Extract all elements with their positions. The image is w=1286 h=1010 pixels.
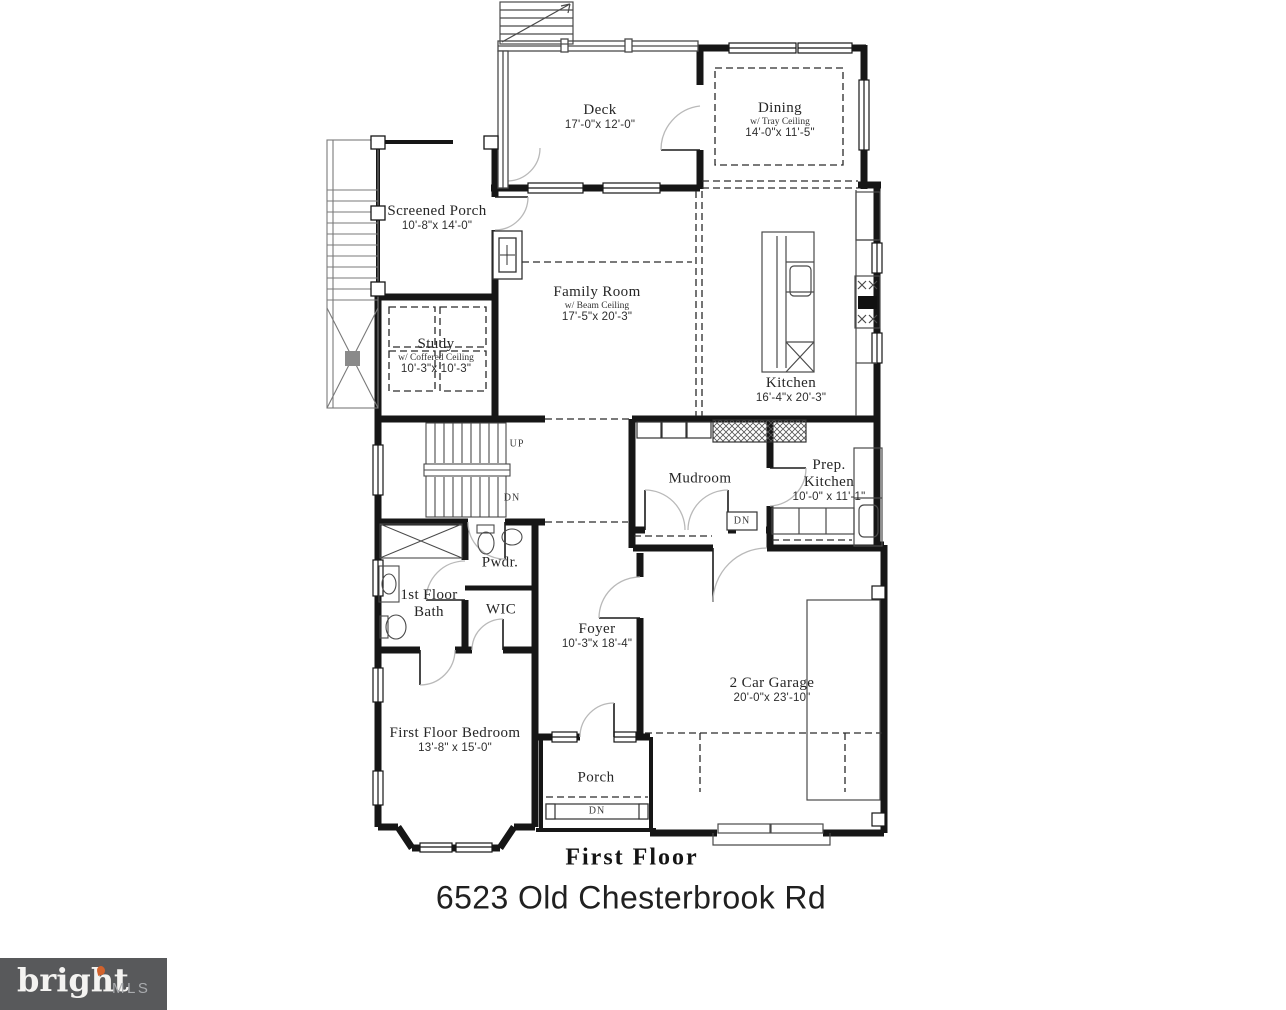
room-name: Study: [376, 336, 496, 353]
mudroom-step-dn-label: DN: [734, 516, 750, 527]
room-name: Dining: [710, 100, 850, 117]
main-staircase: [424, 423, 510, 517]
room-name: Pwdr.: [465, 555, 535, 572]
room-label-foyer: Foyer 10'-3"x 18'-4": [542, 621, 652, 651]
room-label-deck: Deck 17'-0"x 12'-0": [530, 102, 670, 132]
side-yard-stairs: [327, 140, 378, 408]
room-dims: 10'-8"x 14'-0": [357, 220, 517, 233]
room-dims: 14'-0"x 11'-5": [710, 127, 850, 140]
stairs-up-label: UP: [510, 439, 525, 450]
logo-suffix-text: MLS: [112, 980, 150, 997]
bath-fixtures: [379, 524, 462, 639]
powder-fixtures: [477, 525, 522, 554]
room-name: Mudroom: [645, 471, 755, 488]
room-name: 1st Floor Bath: [390, 587, 468, 621]
room-name: Family Room: [517, 284, 677, 301]
porch-step-dn-label: DN: [589, 806, 605, 817]
room-label-screened-porch: Screened Porch 10'-8"x 14'-0": [357, 203, 517, 233]
room-sub: w/ Beam Ceiling: [517, 301, 677, 312]
room-label-family-room: Family Room w/ Beam Ceiling 17'-5"x 20'-…: [517, 284, 677, 324]
room-label-wic: WIC: [471, 602, 531, 619]
room-name: Kitchen: [726, 375, 856, 392]
room-label-kitchen: Kitchen 16'-4"x 20'-3": [726, 375, 856, 405]
bright-mls-logo: bright MLS: [0, 958, 167, 1010]
room-name: Porch: [551, 770, 641, 787]
room-label-porch: Porch: [551, 770, 641, 787]
room-label-first-floor-bath: 1st Floor Bath: [390, 587, 468, 621]
room-label-dining: Dining w/ Tray Ceiling 14'-0"x 11'-5": [710, 100, 850, 140]
room-name: Prep. Kitchen: [786, 457, 872, 491]
room-label-powder: Pwdr.: [465, 555, 535, 572]
room-dims: 13'-8" x 15'-0": [345, 742, 565, 755]
room-name: Deck: [530, 102, 670, 119]
room-name: 2 Car Garage: [692, 675, 852, 692]
room-dims: 10'-0" x 11'-1": [786, 490, 872, 503]
room-name: Screened Porch: [357, 203, 517, 220]
room-name: Foyer: [542, 621, 652, 638]
room-dims: 17'-0"x 12'-0": [530, 119, 670, 132]
fireplace: [493, 231, 522, 279]
room-dims: 20'-0"x 23'-10": [692, 692, 852, 705]
garage-details: [713, 586, 885, 845]
room-label-mudroom: Mudroom: [645, 471, 755, 488]
room-name: First Floor Bedroom: [345, 725, 565, 742]
deck-stairs: [500, 2, 573, 44]
address-title: 6523 Old Chesterbrook Rd: [436, 880, 826, 917]
room-sub: w/ Tray Ceiling: [710, 117, 850, 128]
room-label-first-floor-bedroom: First Floor Bedroom 13'-8" x 15'-0": [345, 725, 565, 755]
room-name: WIC: [471, 602, 531, 619]
floor-plan-page: Deck 17'-0"x 12'-0" Dining w/ Tray Ceili…: [0, 0, 1286, 1010]
room-dims: 16'-4"x 20'-3": [726, 392, 856, 405]
room-label-prep-kitchen: Prep. Kitchen 10'-0" x 11'-1": [786, 457, 872, 503]
room-dims: 10'-3"x 10'-3": [376, 363, 496, 376]
stairs-down-label: DN: [504, 493, 520, 504]
floor-plan-title: First Floor: [565, 845, 698, 872]
floor-plan-drawing: [0, 0, 1286, 950]
room-dims: 17'-5"x 20'-3": [517, 311, 677, 324]
room-sub: w/ Coffered Ceiling: [376, 353, 496, 364]
room-dims: 10'-3"x 18'-4": [542, 638, 652, 651]
room-label-garage: 2 Car Garage 20'-0"x 23'-10": [692, 675, 852, 705]
kitchen-island: [762, 232, 814, 372]
room-label-study: Study w/ Coffered Ceiling 10'-3"x 10'-3": [376, 336, 496, 376]
